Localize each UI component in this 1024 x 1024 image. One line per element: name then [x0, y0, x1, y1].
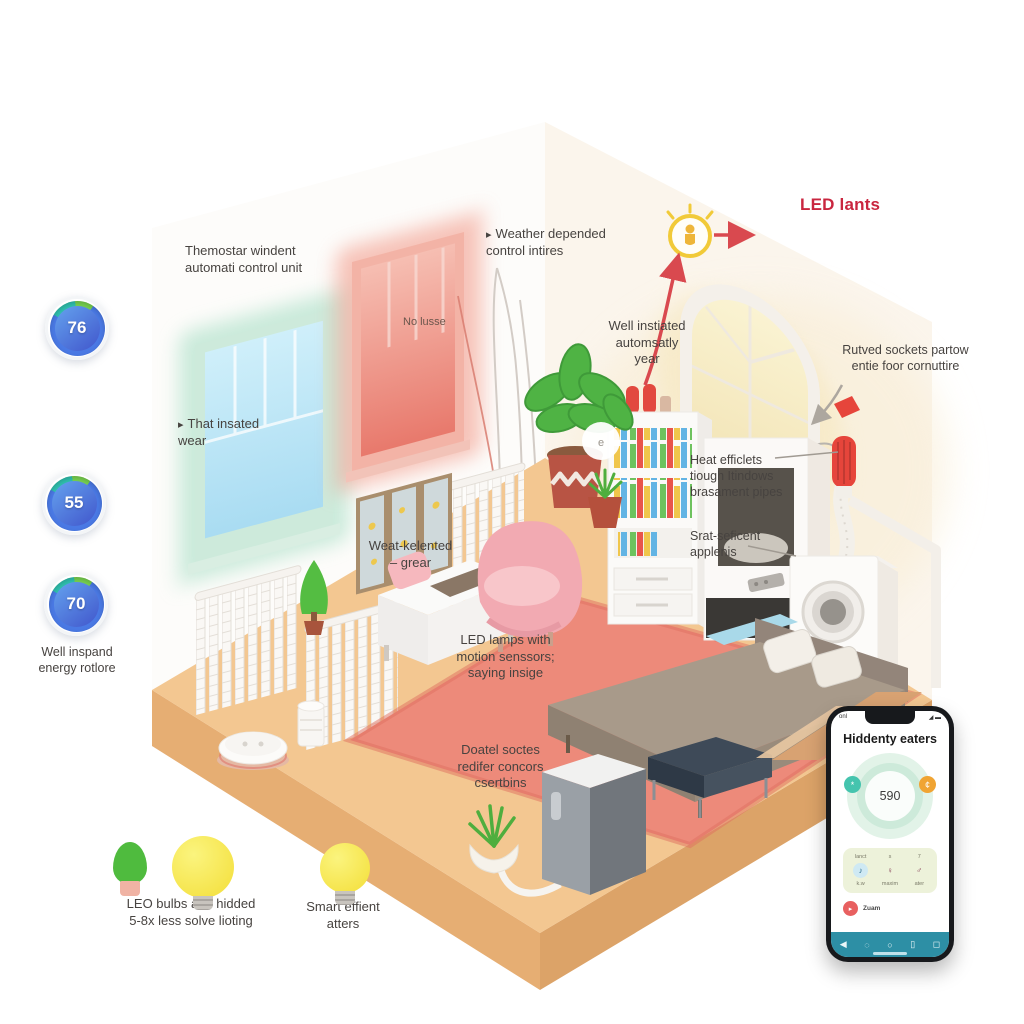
smart-bulb-icon	[320, 843, 370, 893]
phone-stats-panel: lanct s 7 ♪ ♀ ♂ k.w maxim ater	[843, 848, 937, 893]
annotation-doatel: Doatel soctes redifer concors csertbins	[438, 742, 563, 792]
annotation-weat-kelented: Weat-kelented – grear	[348, 538, 473, 571]
annotation-led-lants: LED lants	[800, 194, 880, 216]
bulb-stat-icon[interactable]: ♪	[853, 863, 868, 878]
infographic-canvas: e	[0, 0, 1024, 1024]
panel-label: k.w	[857, 881, 865, 887]
tree-icon	[112, 842, 148, 892]
annotation-rutved-sockets: Rutved sockets partow entie foor cornutt…	[818, 342, 993, 374]
phone-nav-bar: ◀ ◌ ○ ▯ ◻	[831, 932, 949, 957]
smartphone-mockup: onl ◢ ▬ Hiddenty eaters * ¢ 590 lanct s …	[826, 706, 954, 962]
annotation-well-instiated: Well instiated automsatly year	[592, 318, 702, 368]
arrow-marker-icon: ▸	[178, 419, 184, 431]
panel-label: ater	[915, 881, 924, 887]
panel-label: 7	[918, 854, 921, 860]
annotation-heat-efficients: Heat efficlets tiough Itindows brasament…	[690, 452, 810, 500]
nav-speaker-icon[interactable]: ◀	[840, 939, 847, 950]
record-row: ▸ Zuam	[843, 901, 937, 916]
heater-stat-icon[interactable]: ♂	[912, 863, 927, 878]
annotation-text: That insated wear	[178, 416, 259, 448]
gauges-caption: Well inspand energy rotlore	[18, 644, 136, 676]
gauge-value: 76	[55, 306, 100, 351]
phone-notch	[865, 711, 915, 724]
robot-vacuum	[217, 732, 289, 770]
thermostat-gauge: 55	[42, 471, 106, 535]
gauge-value: 55	[52, 481, 97, 526]
gauge-middle-ring: 590	[857, 763, 923, 829]
status-left-text: onl	[839, 714, 847, 721]
coin-badge-icon[interactable]: ¢	[919, 776, 936, 793]
annotation-text: Weather depended control intires	[486, 226, 606, 258]
led-bulb-icon	[172, 836, 234, 898]
gauge-ring: 55	[47, 476, 102, 531]
annotation-led-lamps: LED lamps with motion senssors; saying i…	[428, 632, 583, 682]
panel-label: lanct	[855, 854, 867, 860]
nav-menu-icon[interactable]: ◻	[933, 939, 940, 950]
sensor-glyph: e	[598, 437, 604, 449]
annotation-led-bulbs: LEO bulbs and hidded 5-8x less solve lio…	[100, 896, 282, 929]
status-icons: ◢ ▬	[929, 714, 941, 721]
phone-app-title: Hiddenty eaters	[843, 732, 937, 746]
nav-refresh-icon[interactable]: ◌	[864, 940, 869, 950]
gauge-ring: 76	[50, 301, 105, 356]
gauge-value: 70	[54, 582, 99, 627]
annotation-weather-control: ▸Weather depended control intires	[486, 226, 646, 259]
plug-stat-icon[interactable]: ♀	[882, 863, 897, 878]
nav-home-icon[interactable]: ○	[887, 940, 892, 950]
leaf-badge-icon[interactable]: *	[844, 776, 861, 793]
tree-leaf	[113, 842, 147, 884]
record-button[interactable]: ▸	[843, 901, 858, 916]
panel-label: s	[889, 854, 892, 860]
phone-energy-gauge: * ¢ 590	[847, 753, 933, 839]
annotation-no-lusse: No lusse	[403, 315, 446, 329]
annotation-that-insated: ▸That insated wear	[178, 416, 288, 449]
phone-gauge-value: 590	[865, 771, 915, 821]
annotation-thermostat-window: Themostar windent automati control unit	[185, 243, 365, 276]
thermostat-gauge: 76	[45, 296, 109, 360]
arrow-marker-icon: ▸	[486, 229, 492, 241]
thermostat-gauge: 70	[44, 572, 108, 636]
gauge-ring: 70	[49, 577, 104, 632]
annotation-srat-seficent: Srat-seficent applenis	[690, 528, 800, 560]
record-label: Zuam	[863, 905, 880, 912]
nav-square-icon[interactable]: ▯	[910, 939, 915, 950]
smart-speaker	[298, 701, 324, 746]
phone-screen: onl ◢ ▬ Hiddenty eaters * ¢ 590 lanct s …	[831, 711, 949, 957]
tree-pot	[120, 881, 140, 896]
panel-label: maxim	[882, 881, 898, 887]
home-indicator	[873, 952, 907, 955]
